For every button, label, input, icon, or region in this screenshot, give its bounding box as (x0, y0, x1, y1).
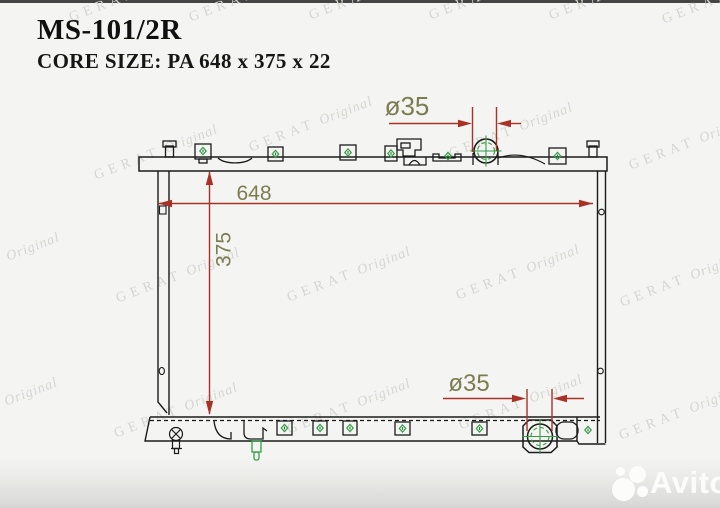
listing-image: GERATOriginal GERATOriginal GERATOrigina… (0, 0, 720, 508)
bottom-oval-fitting (556, 422, 578, 439)
top-tank (139, 139, 607, 171)
avito-logo: Avito (608, 462, 720, 504)
dimension-width-648 (158, 200, 593, 207)
dimension-height-375 (206, 171, 213, 415)
dimension-top-pipe-label: ø35 (376, 93, 438, 119)
dimension-height-label: 375 (214, 226, 235, 274)
dimension-width-label: 648 (228, 183, 280, 204)
radiator-diagram (0, 0, 720, 508)
dimension-bottom-pipe-label: ø35 (440, 372, 498, 396)
bottom-tank (145, 417, 606, 454)
core-side-plates (158, 171, 606, 443)
avito-logo-text: Avito (650, 465, 720, 501)
